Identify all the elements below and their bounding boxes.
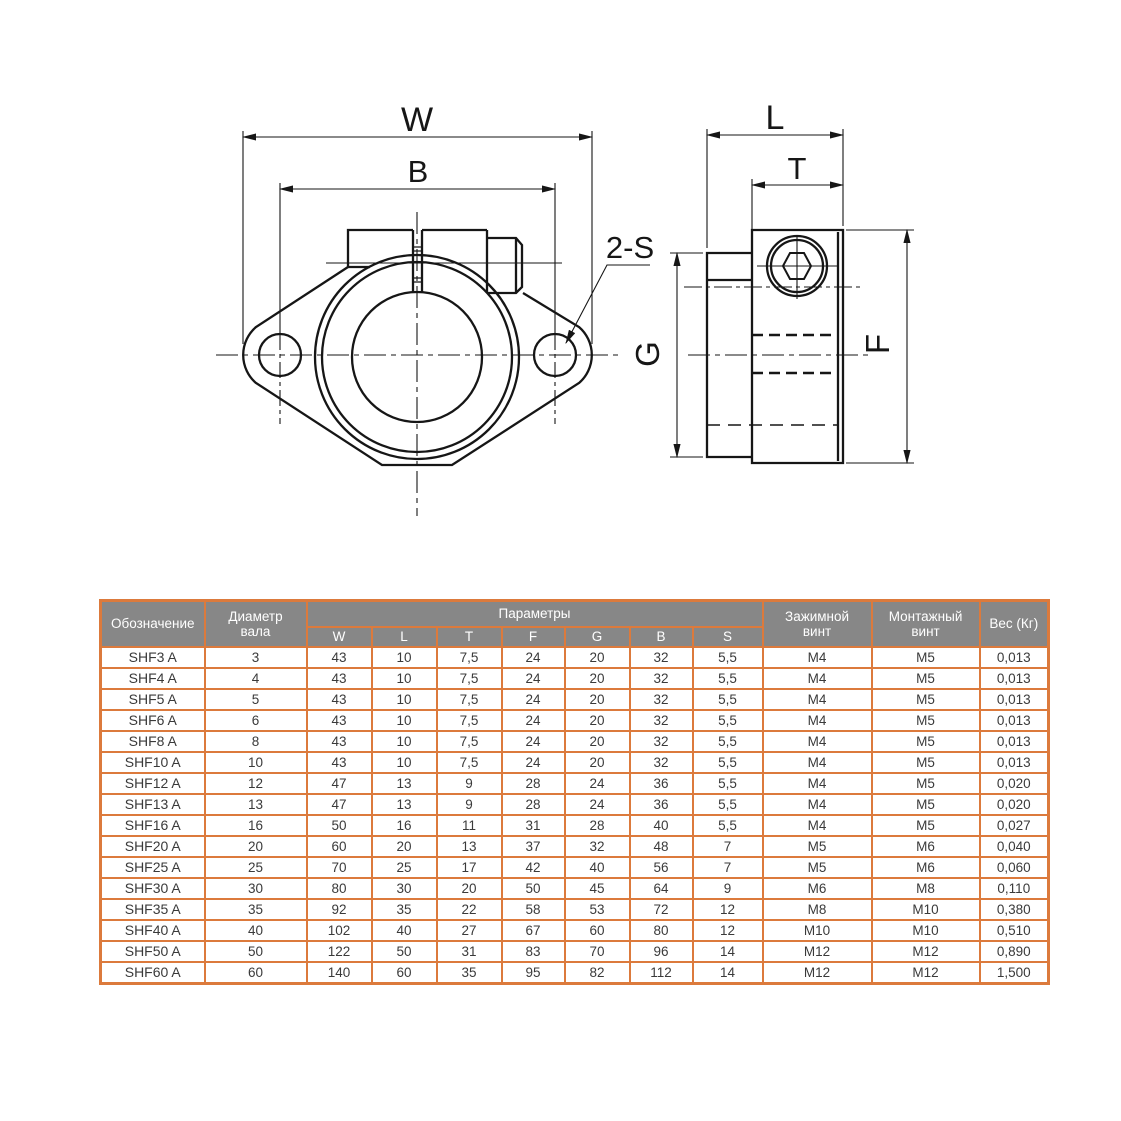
table-cell: 16	[372, 815, 437, 836]
table-cell: SHF12 A	[101, 773, 205, 794]
table-cell: 47	[307, 794, 372, 815]
dim-label-l: L	[766, 99, 785, 137]
table-cell: 32	[630, 752, 693, 773]
table-cell: M4	[763, 794, 872, 815]
table-cell: 9	[437, 794, 502, 815]
table-cell: 37	[502, 836, 565, 857]
col-header-parameters: Параметры	[307, 601, 763, 627]
table-cell: M6	[763, 878, 872, 899]
spec-table: Обозначение Диаметр вала Параметры Зажим…	[99, 599, 1050, 985]
table-cell: 0,027	[980, 815, 1049, 836]
table-cell: 0,013	[980, 710, 1049, 731]
table-cell: 0,020	[980, 773, 1049, 794]
table-cell: 96	[630, 941, 693, 962]
table-cell: 35	[205, 899, 307, 920]
table-cell: SHF35 A	[101, 899, 205, 920]
table-cell: 60	[307, 836, 372, 857]
table-row: SHF13 A13471392824365,5M4M50,020	[101, 794, 1049, 815]
table-cell: 20	[437, 878, 502, 899]
table-row: SHF16 A165016113128405,5M4M50,027	[101, 815, 1049, 836]
table-cell: M4	[763, 815, 872, 836]
screw-boss	[487, 238, 522, 293]
table-row: SHF10 A1043107,52420325,5M4M50,013	[101, 752, 1049, 773]
table-cell: 72	[630, 899, 693, 920]
table-row: SHF20 A206020133732487M5M60,040	[101, 836, 1049, 857]
table-cell: 12	[693, 899, 763, 920]
table-row: SHF30 A308030205045649M6M80,110	[101, 878, 1049, 899]
table-cell: 140	[307, 962, 372, 984]
technical-drawing: W B 2-S	[0, 0, 1121, 580]
spec-table-body: SHF3 A343107,52420325,5M4M50,013SHF4 A44…	[101, 647, 1049, 984]
param-header-t: T	[437, 627, 502, 647]
table-cell: M12	[872, 962, 980, 984]
param-header-g: G	[565, 627, 630, 647]
table-cell: 60	[205, 962, 307, 984]
table-cell: 42	[502, 857, 565, 878]
table-cell: 60	[565, 920, 630, 941]
table-cell: 45	[565, 878, 630, 899]
table-cell: 0,040	[980, 836, 1049, 857]
table-cell: 25	[372, 857, 437, 878]
table-cell: 28	[502, 794, 565, 815]
table-cell: 43	[307, 731, 372, 752]
table-cell: 30	[372, 878, 437, 899]
table-cell: 13	[437, 836, 502, 857]
table-cell: M5	[872, 794, 980, 815]
table-cell: M4	[763, 752, 872, 773]
table-cell: 122	[307, 941, 372, 962]
table-cell: 35	[437, 962, 502, 984]
table-cell: 13	[372, 794, 437, 815]
table-row: SHF12 A12471392824365,5M4M50,020	[101, 773, 1049, 794]
table-cell: M4	[763, 731, 872, 752]
table-cell: M5	[763, 836, 872, 857]
table-cell: 0,510	[980, 920, 1049, 941]
table-cell: SHF30 A	[101, 878, 205, 899]
table-cell: 40	[630, 815, 693, 836]
table-cell: 82	[565, 962, 630, 984]
table-cell: 32	[630, 710, 693, 731]
table-cell: 1,500	[980, 962, 1049, 984]
dim-label-g: G	[629, 341, 666, 367]
table-cell: M10	[872, 899, 980, 920]
table-cell: 5	[205, 689, 307, 710]
table-cell: 10	[372, 668, 437, 689]
table-cell: M5	[872, 815, 980, 836]
table-row: SHF4 A443107,52420325,5M4M50,013	[101, 668, 1049, 689]
table-cell: 0,020	[980, 794, 1049, 815]
table-cell: SHF20 A	[101, 836, 205, 857]
table-cell: 16	[205, 815, 307, 836]
table-cell: 28	[565, 815, 630, 836]
table-cell: 7,5	[437, 689, 502, 710]
table-cell: 24	[502, 647, 565, 668]
table-cell: M8	[763, 899, 872, 920]
table-cell: 102	[307, 920, 372, 941]
table-cell: 7,5	[437, 668, 502, 689]
table-cell: 7	[693, 836, 763, 857]
datasheet-page: W B 2-S	[0, 0, 1121, 1121]
table-cell: 5,5	[693, 731, 763, 752]
table-cell: 10	[372, 752, 437, 773]
table-row: SHF5 A543107,52420325,5M4M50,013	[101, 689, 1049, 710]
table-cell: SHF6 A	[101, 710, 205, 731]
table-cell: 58	[502, 899, 565, 920]
table-cell: 43	[307, 668, 372, 689]
table-cell: 0,013	[980, 731, 1049, 752]
table-cell: SHF40 A	[101, 920, 205, 941]
table-cell: 0,890	[980, 941, 1049, 962]
table-cell: 10	[372, 710, 437, 731]
table-cell: 5,5	[693, 773, 763, 794]
table-cell: 83	[502, 941, 565, 962]
table-row: SHF3 A343107,52420325,5M4M50,013	[101, 647, 1049, 668]
table-cell: M5	[763, 857, 872, 878]
table-cell: 32	[565, 836, 630, 857]
table-cell: 8	[205, 731, 307, 752]
col-header-clamp-screw: Зажимной винт	[763, 601, 872, 647]
table-cell: 5,5	[693, 689, 763, 710]
table-cell: M5	[872, 647, 980, 668]
table-cell: 5,5	[693, 647, 763, 668]
table-cell: 43	[307, 710, 372, 731]
table-cell: 27	[437, 920, 502, 941]
dim-label-b: B	[408, 154, 429, 189]
table-cell: M12	[763, 941, 872, 962]
table-cell: M12	[763, 962, 872, 984]
table-cell: 36	[630, 794, 693, 815]
table-cell: 24	[502, 731, 565, 752]
table-cell: 35	[372, 899, 437, 920]
table-cell: 70	[307, 857, 372, 878]
table-cell: SHF50 A	[101, 941, 205, 962]
table-cell: 40	[372, 920, 437, 941]
table-cell: 14	[693, 962, 763, 984]
table-cell: 5,5	[693, 794, 763, 815]
table-cell: M5	[872, 710, 980, 731]
table-cell: 20	[565, 647, 630, 668]
table-cell: 0,380	[980, 899, 1049, 920]
table-cell: M4	[763, 647, 872, 668]
table-cell: 50	[502, 878, 565, 899]
table-cell: 0,013	[980, 668, 1049, 689]
table-cell: 12	[205, 773, 307, 794]
table-cell: 31	[437, 941, 502, 962]
table-cell: 50	[372, 941, 437, 962]
dim-label-f: F	[859, 334, 896, 354]
table-cell: 7,5	[437, 710, 502, 731]
param-header-s: S	[693, 627, 763, 647]
table-cell: 53	[565, 899, 630, 920]
table-cell: 5,5	[693, 815, 763, 836]
table-cell: 24	[502, 689, 565, 710]
table-cell: M4	[763, 668, 872, 689]
table-cell: SHF8 A	[101, 731, 205, 752]
table-cell: 10	[372, 731, 437, 752]
param-header-f: F	[502, 627, 565, 647]
front-view	[216, 131, 650, 516]
table-cell: 17	[437, 857, 502, 878]
table-cell: 0,013	[980, 752, 1049, 773]
table-cell: 64	[630, 878, 693, 899]
table-cell: M4	[763, 773, 872, 794]
table-cell: 20	[565, 752, 630, 773]
table-cell: 10	[205, 752, 307, 773]
table-cell: 48	[630, 836, 693, 857]
table-cell: M5	[872, 752, 980, 773]
table-cell: SHF5 A	[101, 689, 205, 710]
table-cell: 31	[502, 815, 565, 836]
table-cell: M6	[872, 857, 980, 878]
col-header-designation: Обозначение	[101, 601, 205, 647]
table-cell: 43	[307, 689, 372, 710]
col-header-weight: Вес (Кг)	[980, 601, 1049, 647]
table-cell: 13	[205, 794, 307, 815]
table-cell: SHF3 A	[101, 647, 205, 668]
table-cell: SHF13 A	[101, 794, 205, 815]
table-cell: 95	[502, 962, 565, 984]
table-cell: 70	[565, 941, 630, 962]
table-cell: SHF16 A	[101, 815, 205, 836]
table-cell: SHF4 A	[101, 668, 205, 689]
table-cell: 7,5	[437, 752, 502, 773]
dim-label-t: T	[788, 151, 807, 186]
table-cell: 5,5	[693, 668, 763, 689]
table-cell: 0,013	[980, 647, 1049, 668]
table-cell: 60	[372, 962, 437, 984]
holes-label-2s: 2-S	[606, 230, 654, 265]
table-cell: 10	[372, 689, 437, 710]
table-cell: 0,060	[980, 857, 1049, 878]
dim-label-w: W	[401, 101, 433, 139]
table-cell: 50	[307, 815, 372, 836]
table-row: SHF40 A40102402767608012M10M100,510	[101, 920, 1049, 941]
table-cell: 9	[437, 773, 502, 794]
table-cell: 47	[307, 773, 372, 794]
table-cell: 22	[437, 899, 502, 920]
table-cell: 9	[693, 878, 763, 899]
table-cell: 12	[693, 920, 763, 941]
table-cell: M8	[872, 878, 980, 899]
table-cell: M4	[763, 710, 872, 731]
col-header-mount-screw: Монтажный винт	[872, 601, 980, 647]
table-row: SHF6 A643107,52420325,5M4M50,013	[101, 710, 1049, 731]
table-cell: 14	[693, 941, 763, 962]
table-cell: 56	[630, 857, 693, 878]
table-cell: M10	[872, 920, 980, 941]
table-cell: 32	[630, 731, 693, 752]
table-cell: 3	[205, 647, 307, 668]
table-cell: 0,110	[980, 878, 1049, 899]
table-cell: 20	[565, 668, 630, 689]
table-cell: 20	[565, 731, 630, 752]
table-cell: 10	[372, 647, 437, 668]
table-cell: 32	[630, 647, 693, 668]
table-cell: M5	[872, 668, 980, 689]
table-cell: 92	[307, 899, 372, 920]
table-cell: SHF25 A	[101, 857, 205, 878]
table-cell: 40	[565, 857, 630, 878]
param-header-b: B	[630, 627, 693, 647]
table-cell: 20	[205, 836, 307, 857]
table-cell: 25	[205, 857, 307, 878]
table-cell: M10	[763, 920, 872, 941]
param-header-w: W	[307, 627, 372, 647]
table-cell: 80	[630, 920, 693, 941]
col-header-shaft-diameter: Диаметр вала	[205, 601, 307, 647]
table-cell: SHF10 A	[101, 752, 205, 773]
table-cell: 50	[205, 941, 307, 962]
table-row: SHF25 A257025174240567M5M60,060	[101, 857, 1049, 878]
table-cell: 11	[437, 815, 502, 836]
holes-leader-line	[566, 265, 650, 343]
table-cell: M12	[872, 941, 980, 962]
table-cell: 4	[205, 668, 307, 689]
table-cell: 43	[307, 647, 372, 668]
table-row: SHF60 A601406035958211214M12M121,500	[101, 962, 1049, 984]
table-cell: 6	[205, 710, 307, 731]
table-cell: 43	[307, 752, 372, 773]
table-cell: 24	[502, 668, 565, 689]
table-cell: 20	[565, 689, 630, 710]
table-cell: 36	[630, 773, 693, 794]
table-cell: 24	[565, 773, 630, 794]
table-cell: 7,5	[437, 731, 502, 752]
table-cell: 20	[565, 710, 630, 731]
table-cell: 80	[307, 878, 372, 899]
table-cell: 40	[205, 920, 307, 941]
table-cell: 7,5	[437, 647, 502, 668]
table-cell: 5,5	[693, 710, 763, 731]
table-cell: 13	[372, 773, 437, 794]
param-header-l: L	[372, 627, 437, 647]
table-cell: 0,013	[980, 689, 1049, 710]
table-cell: 7	[693, 857, 763, 878]
table-cell: SHF60 A	[101, 962, 205, 984]
table-cell: 67	[502, 920, 565, 941]
table-cell: 24	[565, 794, 630, 815]
table-row: SHF8 A843107,52420325,5M4M50,013	[101, 731, 1049, 752]
spec-table-header: Обозначение Диаметр вала Параметры Зажим…	[101, 601, 1049, 647]
table-cell: 24	[502, 752, 565, 773]
table-cell: M5	[872, 773, 980, 794]
table-cell: M5	[872, 731, 980, 752]
table-cell: M5	[872, 689, 980, 710]
table-cell: 30	[205, 878, 307, 899]
table-cell: 5,5	[693, 752, 763, 773]
table-cell: 20	[372, 836, 437, 857]
table-row: SHF50 A50122503183709614M12M120,890	[101, 941, 1049, 962]
table-cell: M6	[872, 836, 980, 857]
table-cell: 24	[502, 710, 565, 731]
table-row: SHF35 A3592352258537212M8M100,380	[101, 899, 1049, 920]
table-cell: 32	[630, 689, 693, 710]
table-cell: 28	[502, 773, 565, 794]
table-cell: M4	[763, 689, 872, 710]
table-cell: 112	[630, 962, 693, 984]
table-cell: 32	[630, 668, 693, 689]
